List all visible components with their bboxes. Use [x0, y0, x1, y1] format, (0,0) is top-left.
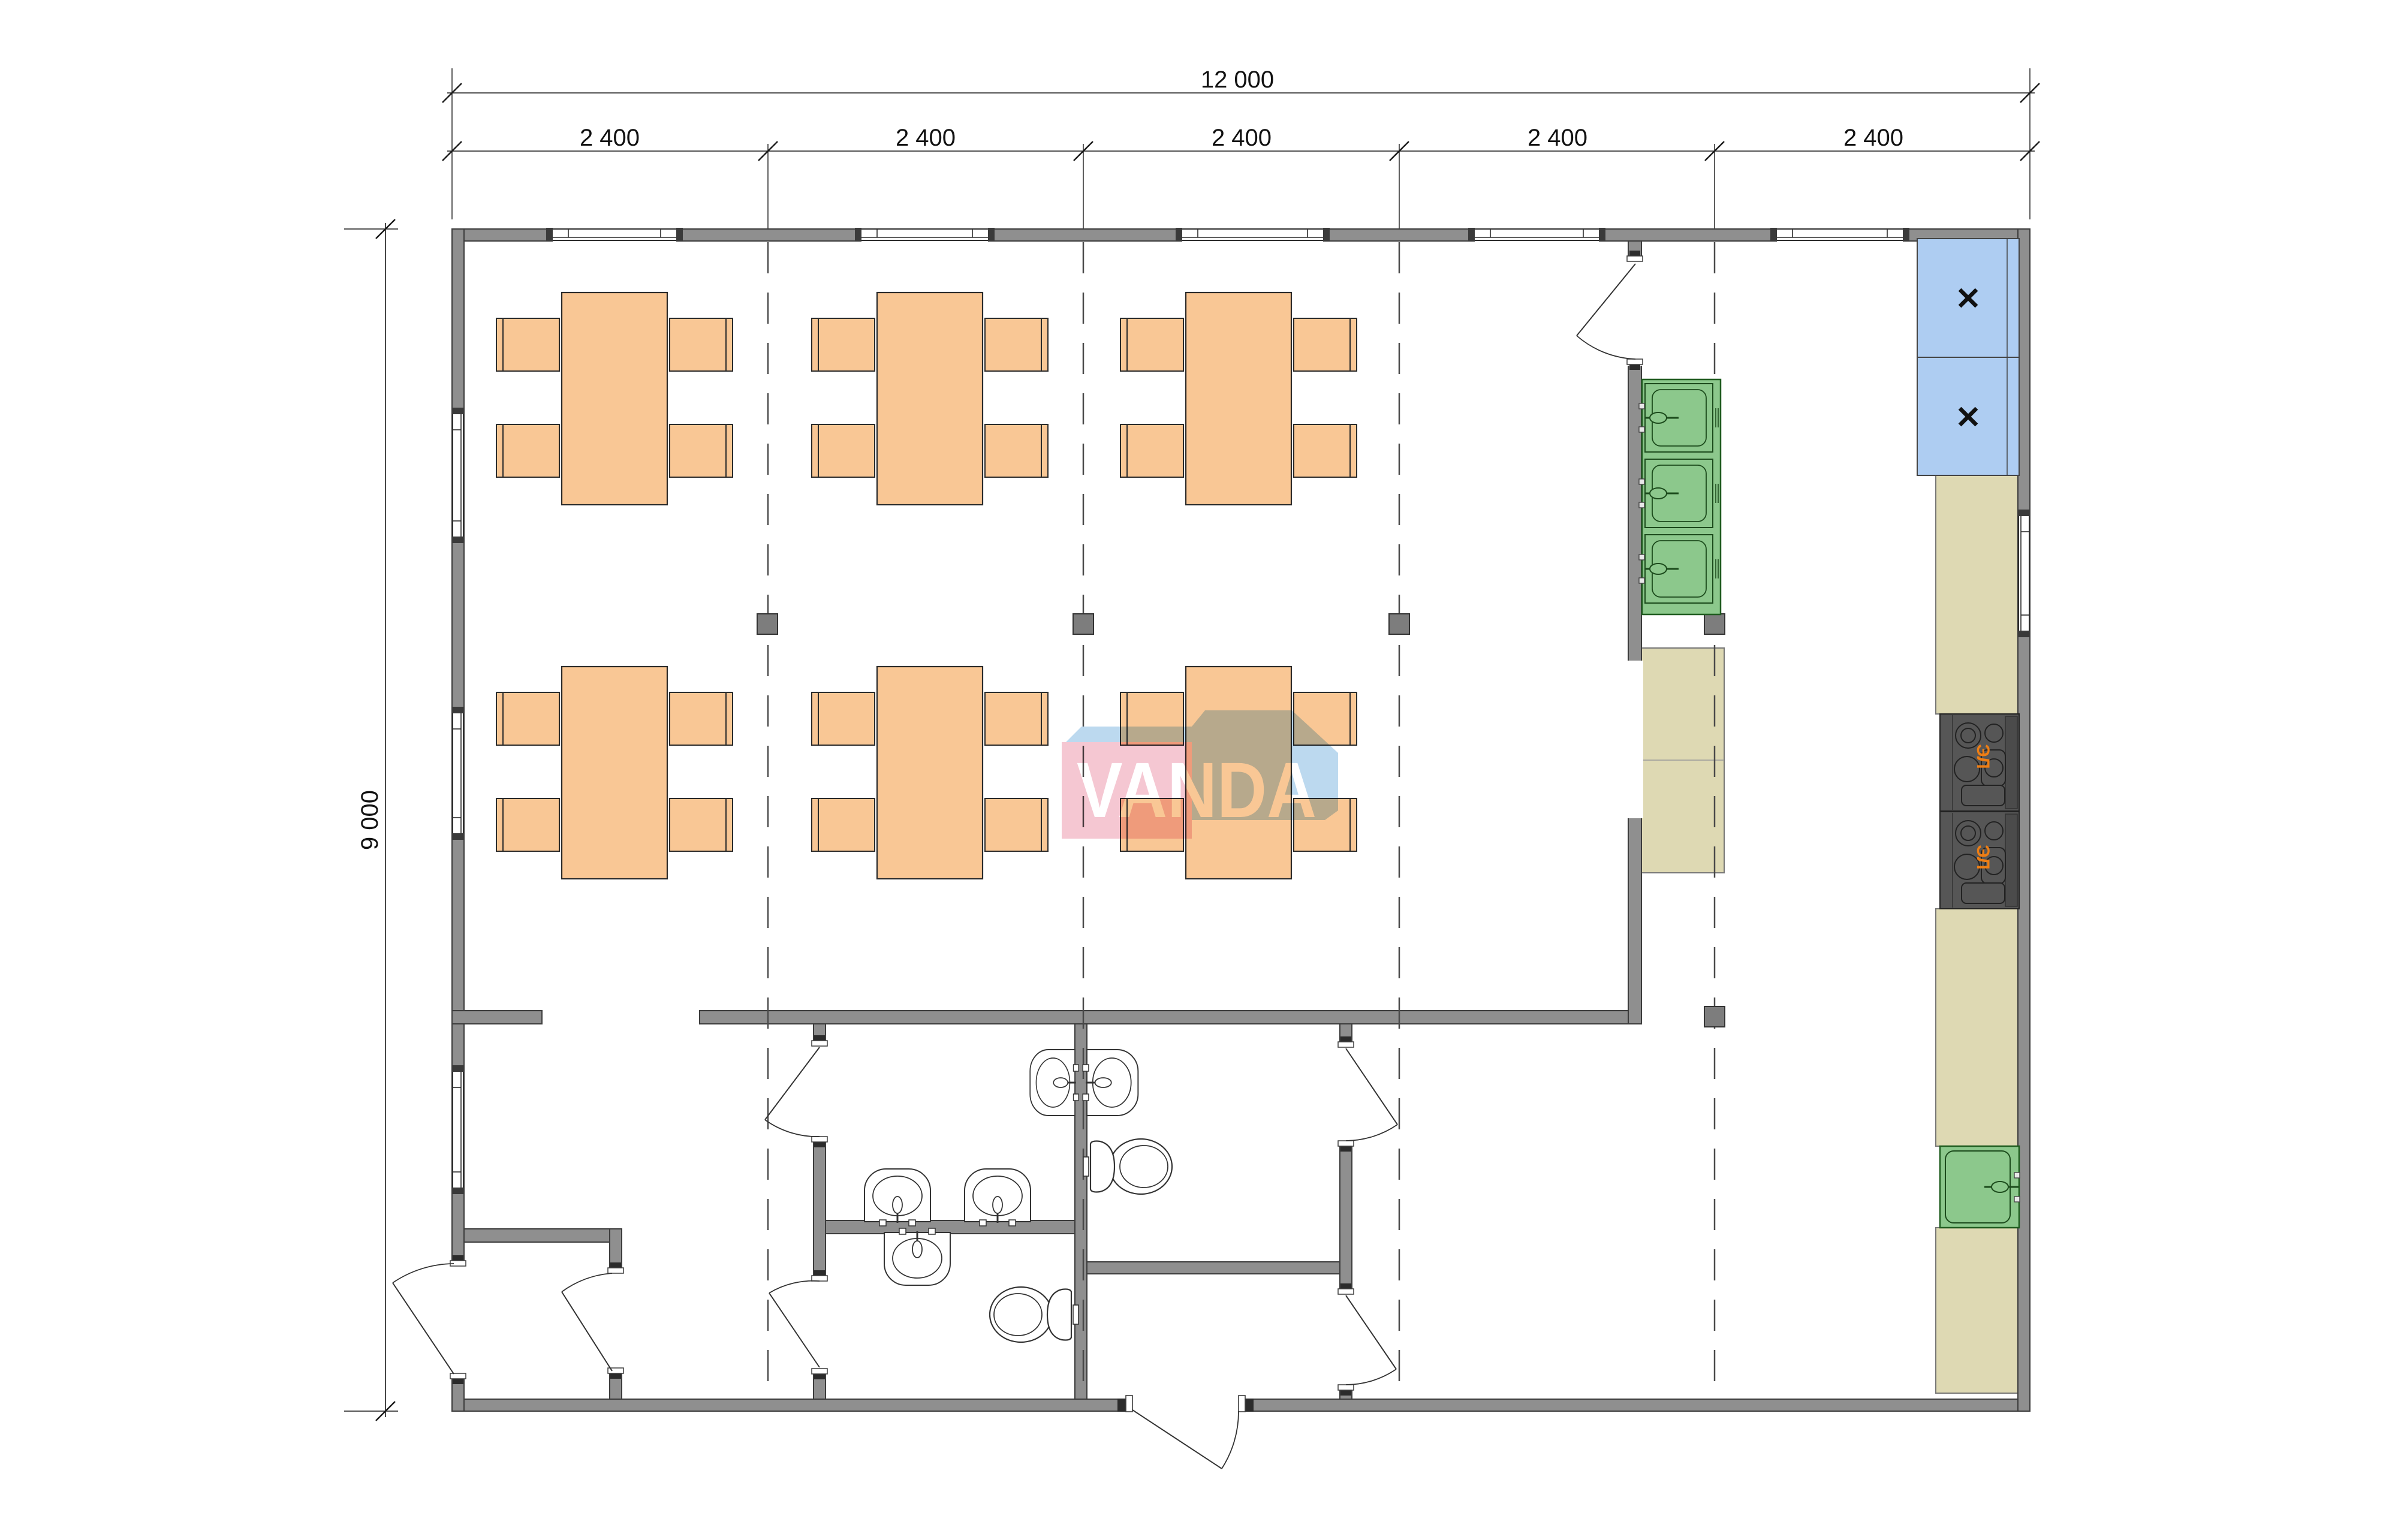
svg-text:✕: ✕ — [1955, 400, 1981, 435]
svg-text:2 400: 2 400 — [580, 125, 640, 151]
svg-text:ЭЛ: ЭЛ — [1973, 744, 1993, 769]
svg-text:2 400: 2 400 — [1528, 125, 1587, 151]
svg-text:9 000: 9 000 — [357, 790, 383, 850]
svg-text:2 400: 2 400 — [896, 125, 956, 151]
svg-text:ЭЛ: ЭЛ — [1973, 845, 1993, 869]
svg-text:✕: ✕ — [1955, 282, 1981, 317]
svg-text:12 000: 12 000 — [1201, 67, 1274, 93]
svg-text:2 400: 2 400 — [1843, 125, 1903, 151]
svg-text:2 400: 2 400 — [1212, 125, 1272, 151]
